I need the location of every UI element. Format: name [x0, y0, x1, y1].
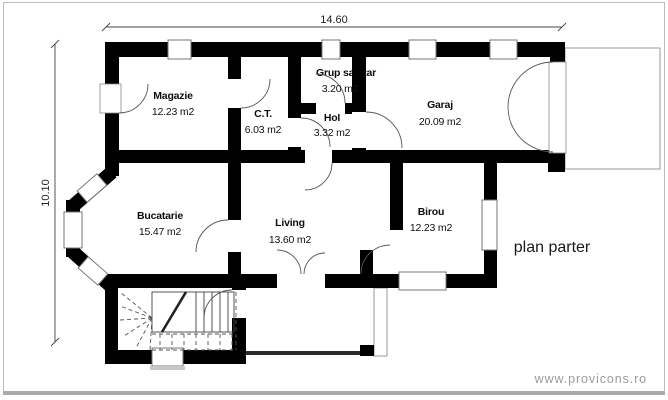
- floor-plan-drawing: Magazie C.T. Grup sanitar Hol Garaj Buca…: [0, 0, 668, 400]
- room-area-magazie: 12.23 m2: [152, 106, 195, 118]
- staircase: [120, 292, 236, 350]
- door-arc-ct: [241, 79, 270, 108]
- room-area-bucatarie: 15.47 m2: [139, 226, 182, 238]
- room-area-grup-sanitar: 3.20 m2: [322, 83, 359, 95]
- page-border-bottom: [3, 391, 665, 395]
- window-garaj-1: [409, 40, 436, 59]
- french-door-leaf-right: [304, 253, 325, 274]
- french-door-living: [277, 274, 325, 288]
- room-area-ct: 6.03 m2: [245, 124, 282, 136]
- door-hol-ct: [288, 118, 301, 147]
- wall-living-birou: [390, 163, 403, 230]
- room-label-magazie: Magazie: [153, 90, 193, 102]
- garage-door-leaf-top: [508, 62, 553, 107]
- wall-bucatarie-living: [228, 163, 241, 274]
- dimension-left: 10.10: [40, 40, 59, 346]
- watermark: www.provicons.ro: [534, 372, 647, 386]
- driveway-outline: [565, 48, 660, 169]
- window-magazie: [168, 40, 191, 59]
- wall-stub-living: [360, 250, 373, 274]
- room-label-living: Living: [275, 217, 305, 229]
- terrace-right-edge: [374, 288, 387, 356]
- window-birou-bottom: [399, 272, 446, 290]
- stair-winder-fan: [120, 292, 152, 350]
- window-birou-right: [482, 200, 497, 250]
- window-garaj-2: [490, 40, 517, 59]
- door-arc-magazie: [119, 84, 148, 113]
- door-magazie-ct: [228, 79, 241, 108]
- window-stairhall-sill: [150, 366, 185, 370]
- stair-treads-upper: [196, 292, 228, 332]
- window-bay-left: [64, 212, 82, 248]
- window-stairhall: [152, 348, 183, 366]
- room-area-hol: 3.32 m2: [314, 127, 351, 139]
- dimension-height-label: 10.10: [40, 179, 52, 207]
- door-arc-garaj: [366, 112, 402, 148]
- door-hol-living: [305, 150, 332, 163]
- door-magazie-exterior: [100, 84, 121, 113]
- room-area-birou: 12.23 m2: [410, 222, 453, 234]
- stair-break-line: [162, 292, 186, 332]
- room-label-birou: Birou: [418, 206, 444, 218]
- room-label-grup-sanitar: Grup sanitar: [316, 67, 376, 79]
- floor-plan-page: Magazie C.T. Grup sanitar Hol Garaj Buca…: [0, 0, 668, 400]
- door-living-birou: [390, 230, 403, 274]
- terrace-bottom-edge: [240, 351, 374, 355]
- window-grup-sanitar: [322, 40, 340, 59]
- room-label-bucatarie: Bucatarie: [137, 210, 183, 222]
- door-arc-bucatarie: [196, 220, 228, 252]
- room-area-garaj: 20.09 m2: [419, 116, 462, 128]
- room-label-garaj: Garaj: [427, 99, 453, 111]
- door-bucatarie-living: [228, 220, 241, 252]
- door-hol-grup: [316, 103, 345, 114]
- plan-title: plan parter: [514, 239, 591, 256]
- room-label-ct: C.T.: [254, 108, 272, 120]
- dimension-width-label: 14.60: [320, 14, 348, 26]
- wall-middle-band: [105, 150, 565, 163]
- dimension-top: 14.60: [102, 14, 566, 31]
- french-door-leaf-left: [277, 250, 301, 274]
- room-area-living: 13.60 m2: [269, 234, 312, 246]
- garage-door-leaf-bottom: [508, 107, 553, 152]
- door-arc-hol-living: [305, 163, 332, 190]
- garage-door-opening: [549, 62, 566, 153]
- terrace-post: [360, 345, 374, 356]
- stair-lower-outline: [152, 292, 236, 350]
- door-hol-garaj: [352, 112, 366, 148]
